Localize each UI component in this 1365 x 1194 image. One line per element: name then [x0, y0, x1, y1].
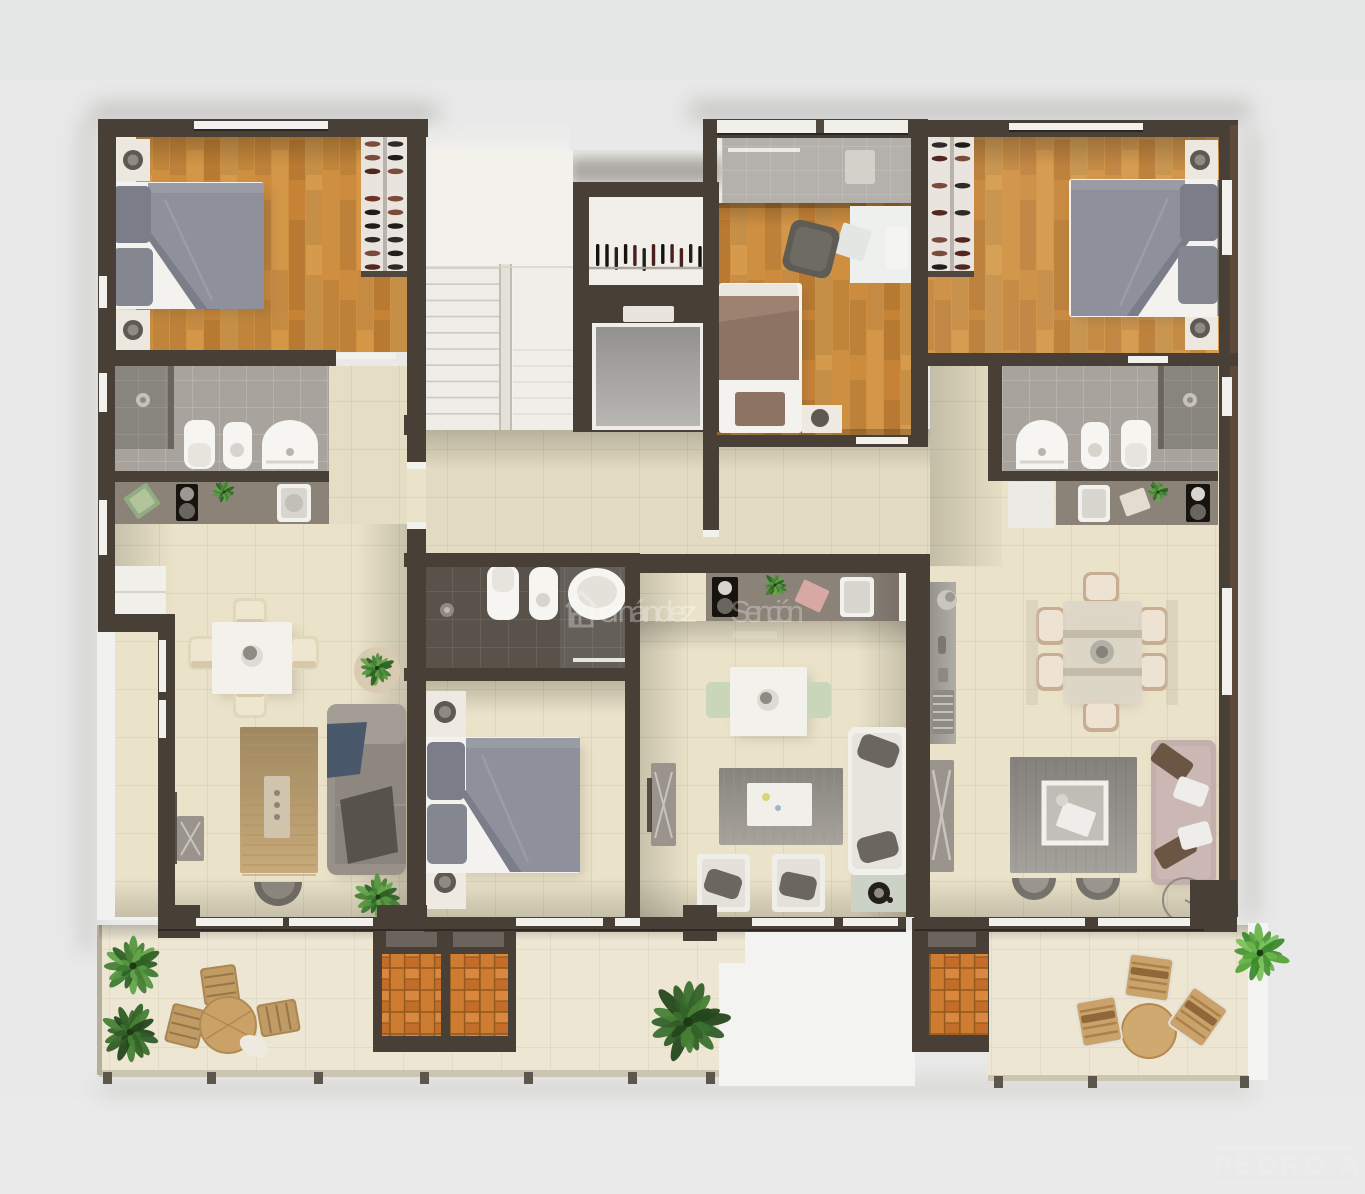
svg-text:Sención: Sención	[730, 594, 804, 629]
svg-text:PEDRO ALEM: PEDRO ALEM	[1213, 1150, 1365, 1180]
svg-text:ernández: ernández	[599, 594, 697, 629]
